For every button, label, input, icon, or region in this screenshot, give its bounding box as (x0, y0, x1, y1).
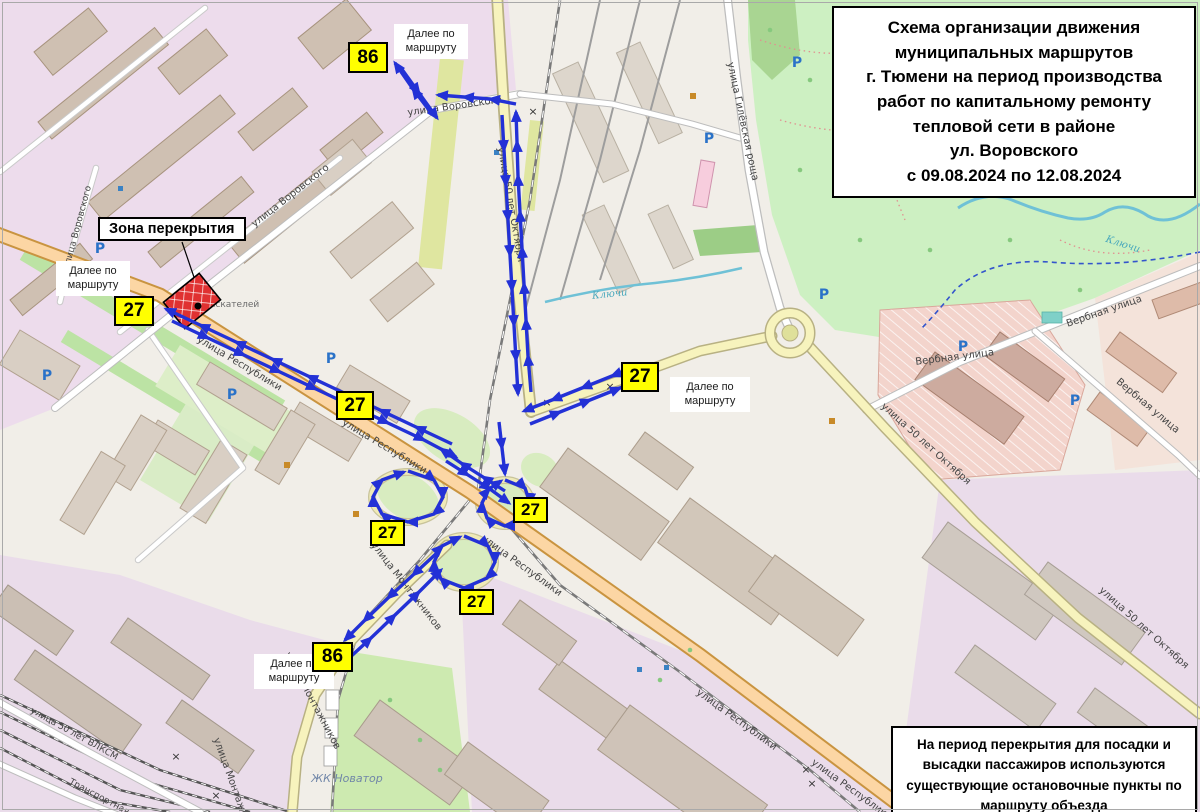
svg-text:P: P (704, 131, 714, 147)
svg-text:P: P (792, 55, 802, 71)
title-line: с 09.08.2024 по 12.08.2024 (836, 164, 1192, 189)
route-continues-label-left: Далее по маршруту (56, 261, 130, 296)
info-line: существующие остановочные пункты по (895, 776, 1193, 796)
svg-text:P: P (958, 339, 968, 355)
route-continues-label-top: Далее по маршруту (394, 24, 468, 59)
playground-icon (693, 160, 715, 208)
route-badge-27-right: 27 (621, 362, 659, 392)
title-line: работ по капитальному ремонту (836, 90, 1192, 115)
svg-text:×: × (807, 777, 816, 790)
title-line: г. Тюмени на период производства (836, 65, 1192, 90)
route-continues-label-right: Далее по маршруту (670, 377, 750, 412)
svg-text:Ключи: Ключи (590, 287, 628, 302)
svg-text:P: P (95, 241, 105, 257)
route-badge-27-center: 27 (513, 497, 548, 523)
route-arrows-connector (499, 422, 505, 474)
info-line: высадки пассажиров используются (895, 755, 1193, 775)
title-line: муниципальных маршрутов (836, 41, 1192, 66)
svg-text:×: × (528, 105, 537, 118)
route-badge-27-left: 27 (114, 296, 154, 326)
title-line: тепловой сети в районе (836, 115, 1192, 140)
route-badge-86-top: 86 (348, 42, 388, 73)
svg-text:ЖК Новатор: ЖК Новатор (310, 772, 383, 785)
closure-zone-label: Зона перекрытия (98, 217, 246, 241)
route-badge-86-bottom: 86 (312, 642, 353, 672)
title-line: Схема организации движения (836, 16, 1192, 41)
svg-text:P: P (326, 351, 336, 367)
route-badge-27-lower: 27 (459, 589, 494, 615)
info-line: На период перекрытия для посадки и (895, 735, 1193, 755)
scheme-title-box: Схема организации движения муниципальных… (832, 6, 1196, 198)
svg-text:P: P (819, 287, 829, 303)
svg-text:P: P (227, 387, 237, 403)
info-line: маршруту объезда (895, 796, 1193, 812)
svg-text:×: × (801, 763, 810, 776)
svg-text:×: × (171, 750, 180, 763)
svg-text:×: × (211, 789, 220, 802)
stops-info-box: На период перекрытия для посадки и высад… (891, 726, 1197, 812)
title-line: ул. Воровского (836, 139, 1192, 164)
svg-text:P: P (1070, 393, 1080, 409)
route-badge-27-mid: 27 (336, 391, 374, 420)
svg-text:P: P (42, 368, 52, 384)
route-badge-27-center-left: 27 (370, 520, 405, 546)
map-canvas: улица Республики улица Республики улица … (0, 0, 1200, 812)
